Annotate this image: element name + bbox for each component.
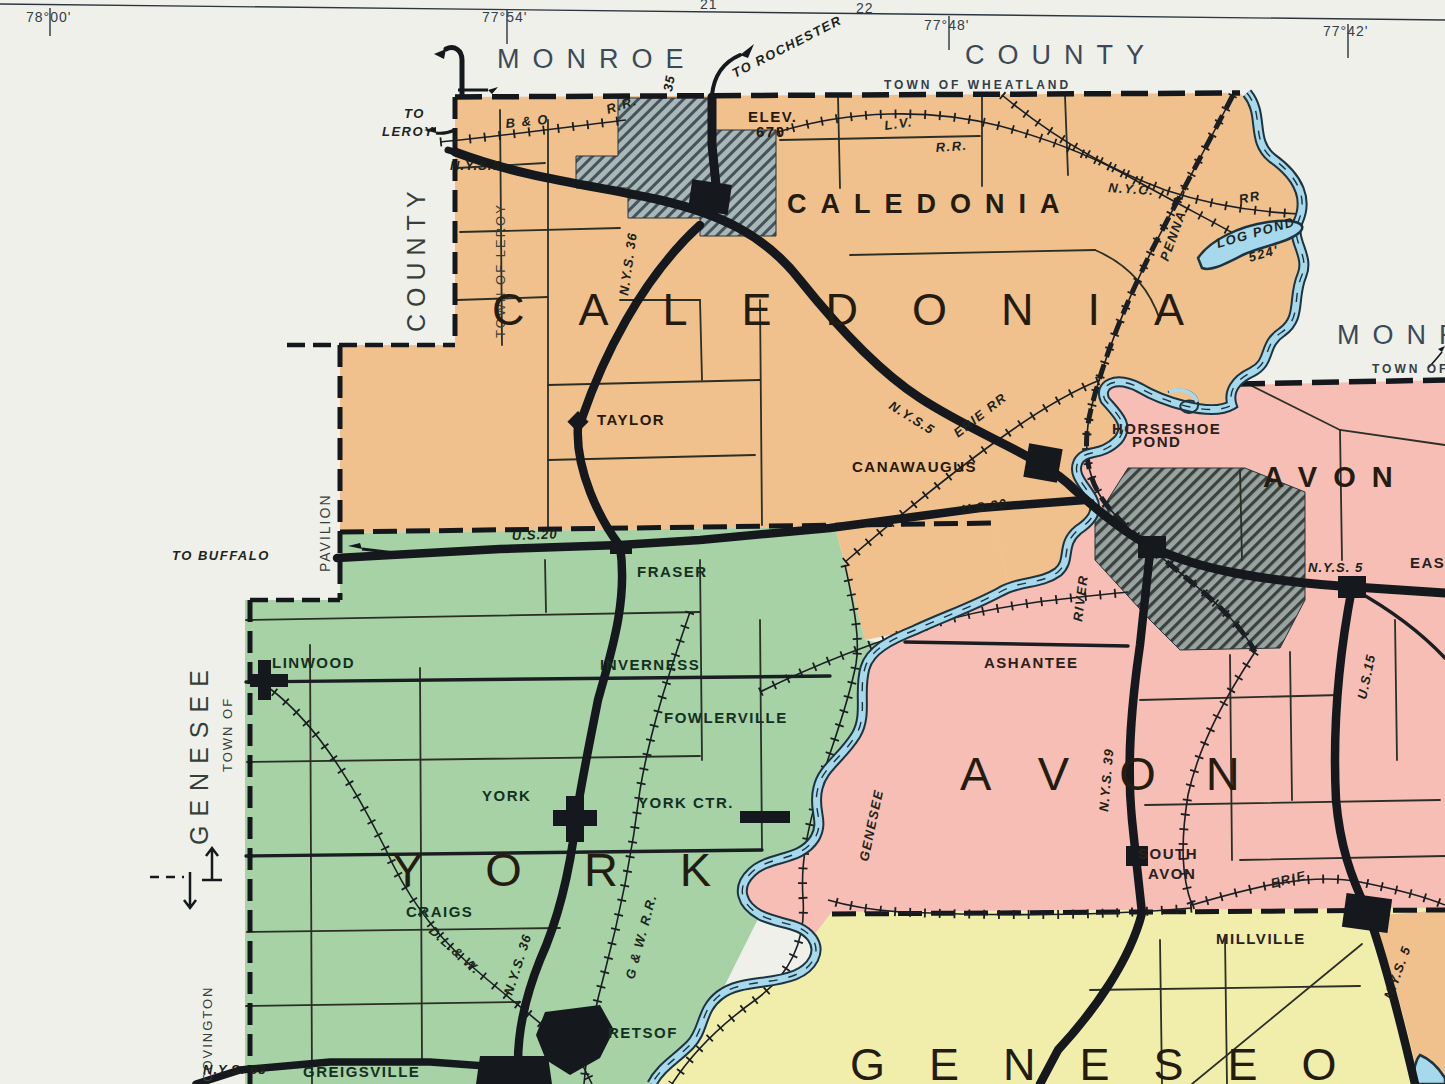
place-south-avon-2: AVON xyxy=(1148,865,1196,882)
caledonia-village-name: CALEDONIA xyxy=(787,189,1074,219)
lon-78-00: 78°00' xyxy=(26,9,71,25)
greigsville-blob xyxy=(476,1056,552,1084)
town-of-right: TOWN OF xyxy=(1372,362,1445,376)
place-inverness: INVERNESS xyxy=(600,656,700,673)
pavilion-left: PAVILION xyxy=(317,493,333,572)
place-york: YORK xyxy=(482,787,531,804)
geneseo-town-name: GENESEO xyxy=(850,1039,1381,1084)
grid-22: 22 xyxy=(856,0,874,16)
place-millville: MILLVILLE xyxy=(1216,930,1306,947)
place-craigs: CRAIGS xyxy=(406,903,473,920)
avon-village-name: AVON xyxy=(1263,461,1409,493)
nys63-label: N.Y.S. 63 xyxy=(203,1062,266,1077)
horseshoe-pond-2: POND xyxy=(1132,433,1181,450)
place-york-ctr: YORK CTR. xyxy=(638,794,734,811)
nys5-west-label: N.Y.S.5 xyxy=(450,158,501,173)
monroe-county-top-2: COUNTY xyxy=(965,40,1157,70)
to-buffalo: TO BUFFALO xyxy=(172,548,270,563)
grid-21: 21 xyxy=(700,0,718,12)
to-leroy-line1: TO xyxy=(404,106,425,121)
county-left: COUNTY xyxy=(402,184,430,332)
lon-77-42: 77°42' xyxy=(1323,23,1368,39)
map-sheet: 78°00' 77°54' 77°48' 77°42' 21 22 MONROE… xyxy=(0,0,1445,1084)
caledonia-town-name: CALEDONIA xyxy=(492,284,1238,335)
place-elev2: 670' xyxy=(756,123,791,140)
town-of-left: TOWN OF xyxy=(220,697,235,772)
map-canvas: 78°00' 77°54' 77°48' 77°42' 21 22 MONROE… xyxy=(0,0,1445,1084)
lv-rr-label: R.R. xyxy=(935,138,968,155)
place-linwood: LINWOOD xyxy=(272,654,355,671)
place-east-avon: EAST AVON xyxy=(1410,554,1445,571)
nys5-avon-label: N.Y.S. 5 xyxy=(1308,560,1363,575)
lon-77-54: 77°54' xyxy=(482,9,527,25)
place-south-avon-1: SOUTH xyxy=(1138,845,1198,862)
avon-town-name: AVON xyxy=(960,747,1290,800)
to-leroy-line2: LEROY xyxy=(382,124,434,139)
place-ashantee: ASHANTEE xyxy=(984,654,1079,671)
monroe-right: MONROE xyxy=(1337,320,1445,350)
york-town-name: YORK xyxy=(392,843,773,896)
genesee-left: GENESEE xyxy=(185,661,213,845)
road-to-rochester xyxy=(712,97,716,185)
place-greigsville: GREIGSVILLE xyxy=(303,1063,420,1080)
monroe-county-top-1: MONROE xyxy=(497,44,697,74)
place-canawaugus: CANAWAUGUS xyxy=(852,458,977,475)
lon-77-48: 77°48' xyxy=(924,17,969,33)
place-taylor: TAYLOR xyxy=(597,411,665,428)
place-fraser: FRASER xyxy=(637,563,708,580)
us20-west-label: U.S.20 xyxy=(512,526,558,543)
nyc-label: N.Y.C. xyxy=(1108,180,1155,198)
place-fowlerville: FOWLERVILLE xyxy=(664,709,788,726)
town-of-wheatland: TOWN OF WHEATLAND xyxy=(884,78,1071,92)
road-west-stub xyxy=(448,150,455,152)
route-35-label: 35 xyxy=(660,74,678,93)
place-retsof: RETSOF xyxy=(608,1024,678,1041)
